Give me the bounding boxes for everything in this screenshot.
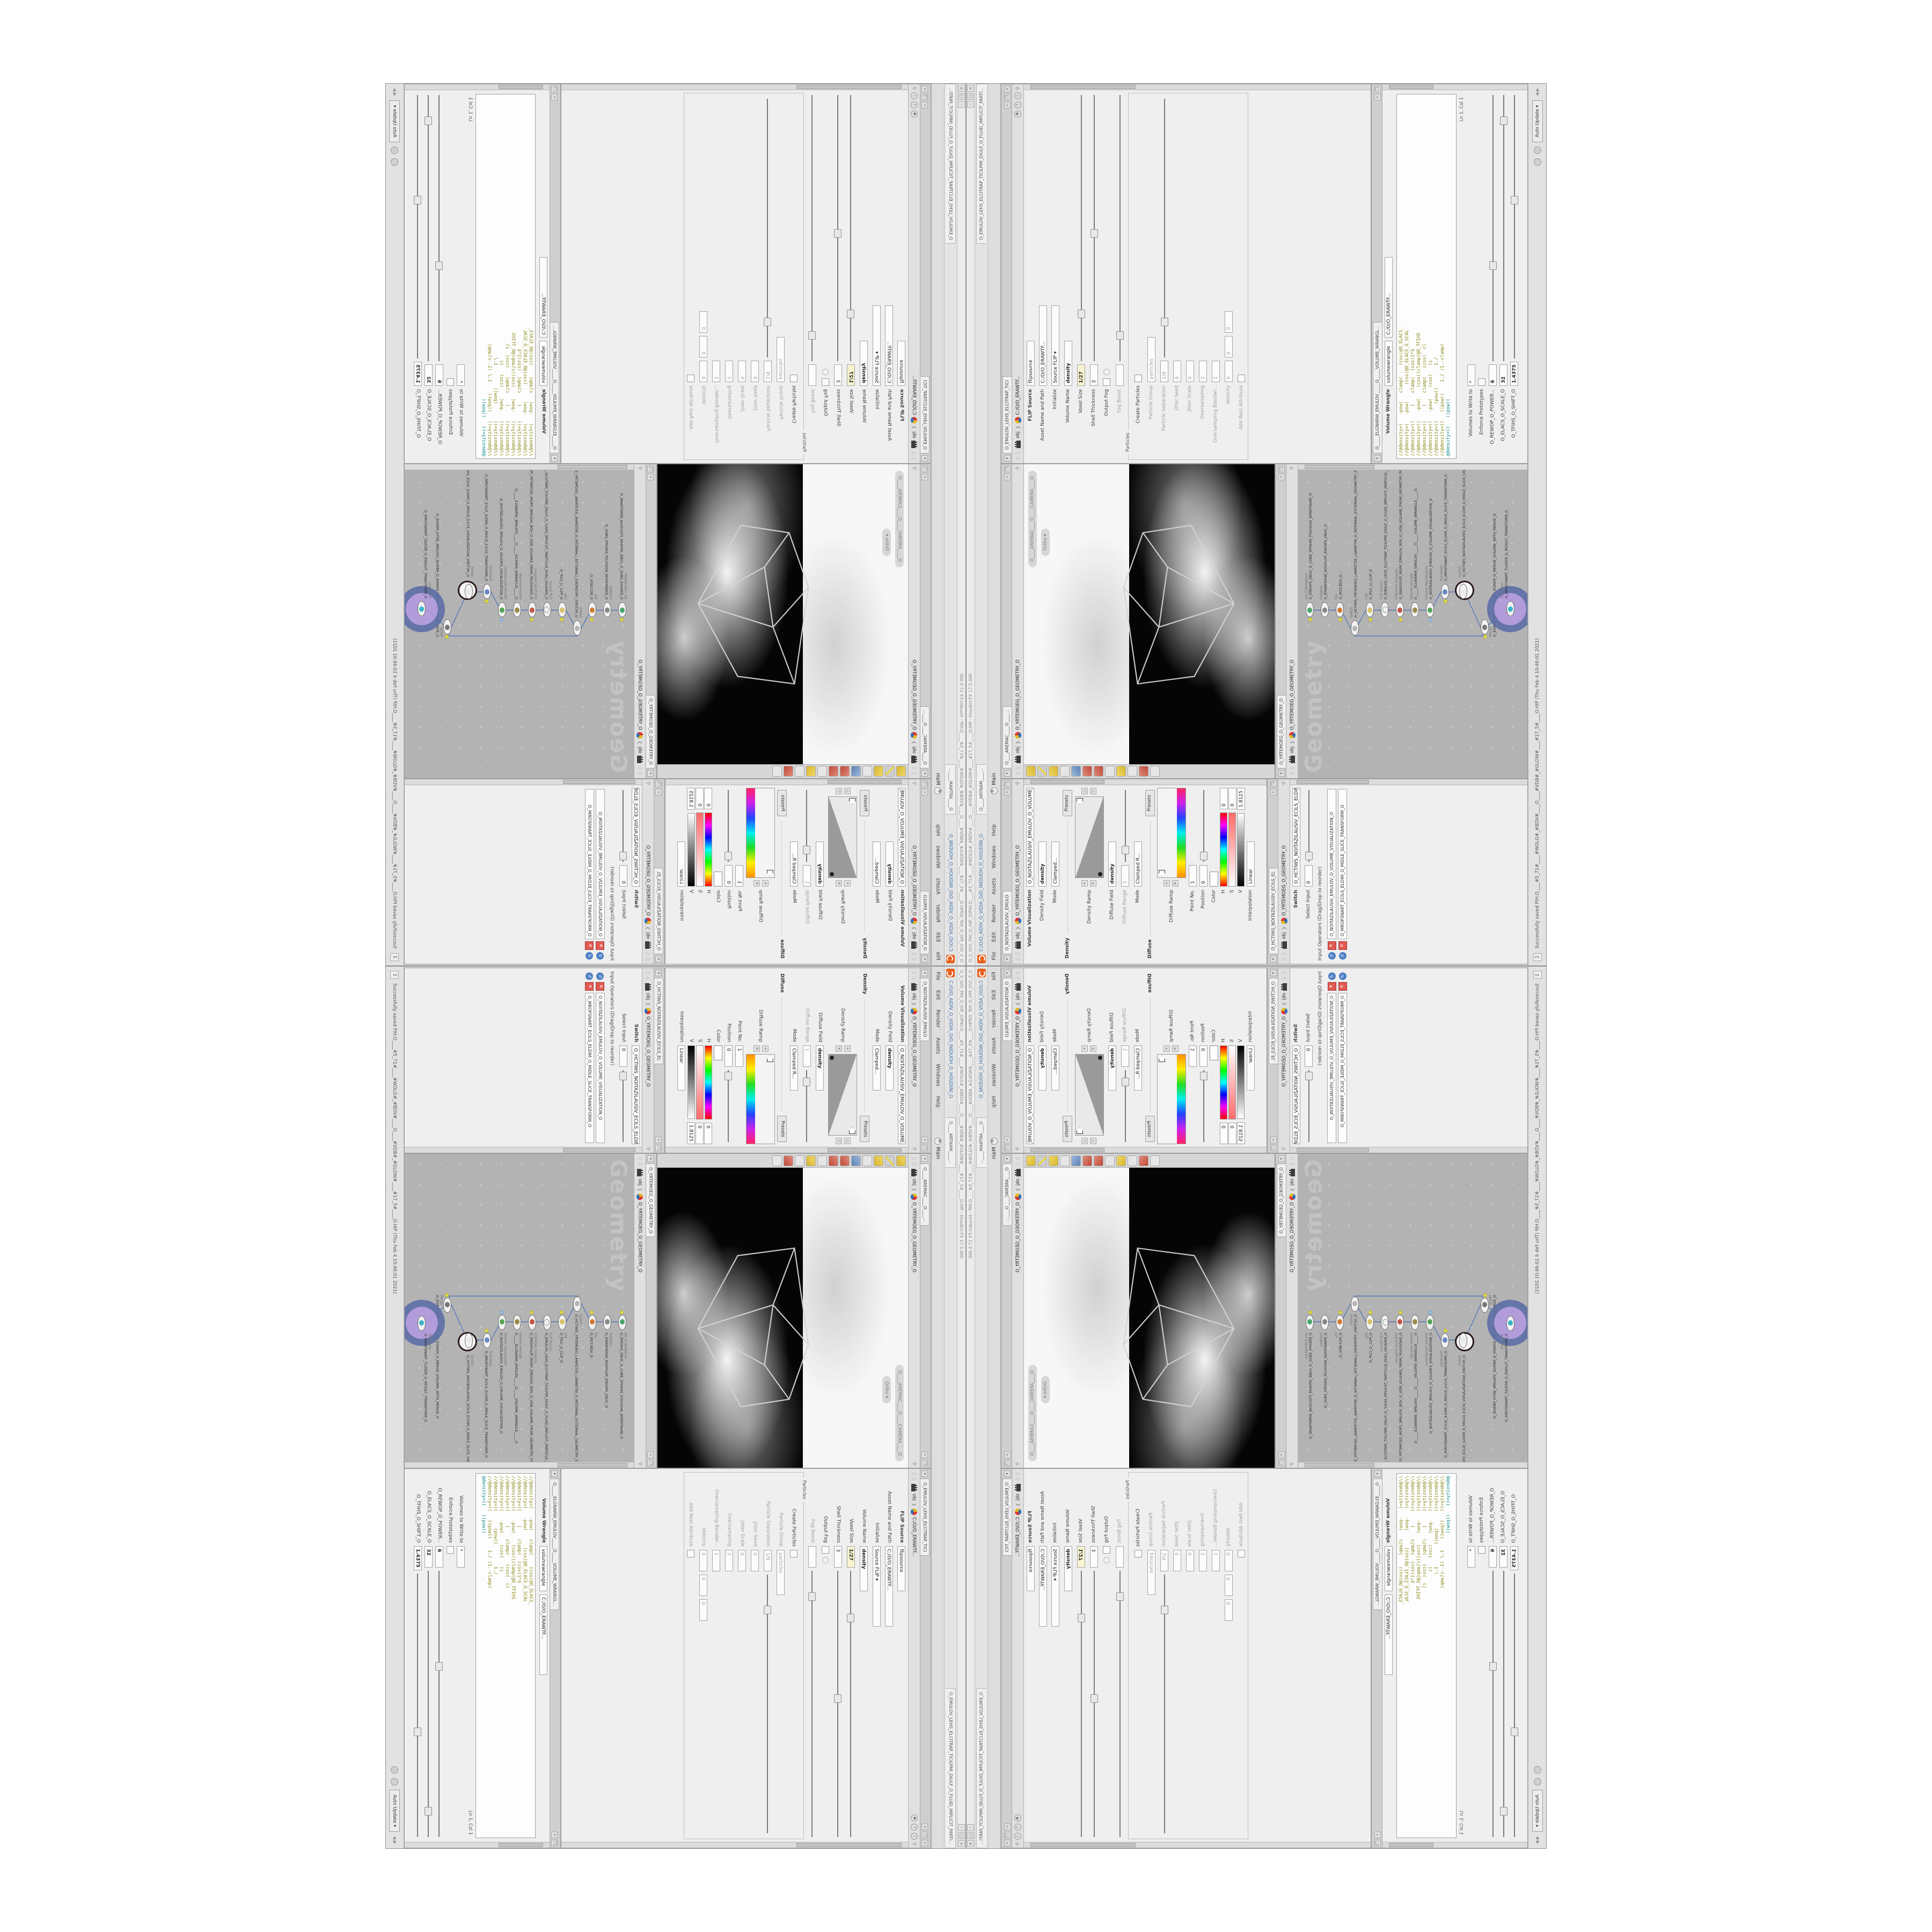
particle-group-input[interactable]: particles	[1147, 337, 1155, 382]
node[interactable]: Volume WrangleO_____ELGNARW_EMULOV_____O…	[1411, 602, 1419, 617]
diffuse-range-slider[interactable]	[1121, 788, 1129, 862]
pane-maximize-icon[interactable]: ❐	[921, 781, 928, 787]
select-input-slider[interactable]	[620, 788, 628, 862]
voxel-size-slider[interactable]	[1077, 1571, 1085, 1839]
remove-input-icon[interactable]: ✕	[1338, 982, 1347, 991]
select-tool-icon[interactable]	[1037, 1155, 1047, 1166]
volumes-input[interactable]: *	[1467, 1546, 1475, 1568]
pane-split-icon[interactable]: +	[921, 1137, 928, 1143]
volume-name-input[interactable]: density	[860, 1546, 868, 1591]
snap-grid-icon[interactable]	[1094, 1155, 1103, 1166]
diffuse-range-input[interactable]: 1	[803, 865, 811, 887]
jitter-scale-input[interactable]: 0	[1186, 1550, 1194, 1571]
shift-input[interactable]: 1.4375	[1510, 1546, 1518, 1570]
val-strip[interactable]	[1237, 1045, 1245, 1119]
view-tool-icon[interactable]	[896, 766, 906, 777]
density-field-input[interactable]: density	[886, 1045, 894, 1091]
maximize-icon[interactable]: □	[958, 1832, 965, 1839]
snap-grid-icon[interactable]	[829, 766, 838, 777]
pane-menu-icon[interactable]: ▾	[921, 1155, 928, 1162]
position-input[interactable]: 0	[725, 1045, 733, 1067]
asset-path-field[interactable]: C:/O/O_ERAWTF...	[540, 1594, 548, 1675]
help-icon[interactable]: ?	[1014, 1824, 1021, 1831]
node[interactable]: TransformO_MROFSNART_ECILS_ELDIM_O_MIDLE…	[483, 584, 491, 599]
ramp-flag-handle[interactable]	[767, 1056, 773, 1062]
shift-input[interactable]: 1.4375	[414, 362, 422, 386]
ortho-pill[interactable]: Ortho ▾	[1041, 529, 1050, 556]
tab-volume-visualization[interactable]: O_NOITAZILAUSIV_EMULO	[1002, 978, 1012, 1041]
pane-maximize-icon[interactable]: ❐	[1004, 1145, 1011, 1151]
diffuse-range-slider[interactable]	[803, 1070, 811, 1144]
node[interactable]: VDB from PolygonsO_SNOGYLOP_MORF_EMULOV_…	[528, 602, 536, 617]
pin-icon[interactable]: ⚲	[1015, 781, 1021, 785]
oversampling-bw-input[interactable]: 1	[713, 1550, 721, 1571]
node[interactable]: SwitchO_HCTIWS_YRTEMOEG_LANRETXE_LANRETN…	[573, 1297, 581, 1312]
volumes-input[interactable]: *	[457, 364, 465, 386]
pane-maximize-icon[interactable]: ❐	[921, 1832, 928, 1838]
reorder-icon[interactable]: ↺	[1328, 972, 1336, 980]
output-fog-checkbox[interactable]	[1103, 378, 1110, 386]
velocity-x-input[interactable]: 0	[700, 1550, 708, 1571]
stow-arrows-icon[interactable]: ⇧⇩	[1282, 970, 1287, 981]
input-operator-row[interactable]: ↺ ✕ O_NOITAZILAUSIV_EMULOV_O_VOLUME_VISU…	[596, 972, 605, 1143]
diffuse-mode-select[interactable]: Clamped R...	[791, 1045, 799, 1091]
shift-slider[interactable]	[414, 93, 422, 358]
select-input-slider[interactable]	[1305, 1070, 1313, 1144]
hue-input[interactable]: 0	[705, 1123, 713, 1144]
pane-menu-icon[interactable]: ▾	[1004, 1470, 1011, 1477]
node[interactable]: SwitchO_HCTIWS_YRTEMOEG_LANRETXE_LANRETN…	[1351, 1297, 1359, 1312]
reorder-icon[interactable]: ↺	[586, 972, 594, 980]
ramp-down-icon[interactable]: ▽	[836, 788, 842, 794]
density-ramp-widget[interactable]	[1075, 1054, 1104, 1136]
tab-network[interactable]: O_YRTEMOEG_O_GEOMETRY_O	[646, 1163, 655, 1237]
volumes-input[interactable]: *	[457, 1546, 465, 1568]
ramp-add-point-icon[interactable]: +	[844, 880, 851, 887]
shift-slider[interactable]	[1510, 93, 1518, 358]
pane-split-icon[interactable]: +	[1278, 474, 1285, 480]
stow-arrows-icon[interactable]: ⇧⇩	[1015, 1156, 1021, 1167]
stow-arrows-icon[interactable]: ⇧⇩	[912, 1471, 917, 1482]
pane-split-icon[interactable]: +	[1004, 1452, 1011, 1458]
voxel-size-input[interactable]: 1/27	[847, 364, 855, 386]
light-tool-icon[interactable]	[772, 766, 782, 777]
menu-help[interactable]: Help	[934, 1095, 942, 1109]
pane-maximize-icon[interactable]: ❐	[655, 1145, 662, 1151]
stow-arrows-icon[interactable]: ⇧⇩	[638, 765, 643, 776]
density-field-input[interactable]: density	[1038, 841, 1046, 887]
gear-icon[interactable]: ✱	[911, 1814, 918, 1821]
scrollbar[interactable]	[405, 84, 550, 90]
pane-menu-icon[interactable]: ▾	[1004, 1155, 1011, 1162]
diffuse-field-input[interactable]: density	[1108, 1045, 1116, 1091]
tab-volume-wrangle[interactable]: O_____ELGNARW_EMULOV_____O_____VOLUME_WR…	[550, 322, 559, 453]
menu-help[interactable]: Help	[990, 1095, 998, 1109]
snap-magnet-icon[interactable]	[1082, 766, 1092, 777]
path-text[interactable]: O_YRTEMOEG_O_GEOMETRY_O	[638, 1202, 643, 1272]
move-tool-icon[interactable]	[874, 766, 883, 777]
particle-separation-slider[interactable]	[764, 97, 772, 357]
info-tool-icon[interactable]	[795, 766, 804, 777]
tab-flip-window[interactable]: O_EMULOV_LEHS_ELCITRAP_TICILPMI_DIULF_O_…	[946, 1688, 956, 1848]
lasso-select-icon[interactable]	[1105, 766, 1115, 777]
fog-boost-input[interactable]	[809, 1546, 817, 1568]
desktop-selector[interactable]: Main	[934, 1138, 941, 1159]
maximize-icon[interactable]: □	[967, 93, 974, 100]
particle-group-input[interactable]: particles	[777, 337, 785, 382]
shell-thickness-input[interactable]: 3	[1090, 1546, 1098, 1568]
ramp-point-handle[interactable]	[1098, 872, 1102, 876]
pane-maximize-icon[interactable]: ❐	[1270, 1145, 1277, 1151]
brush-tool-icon[interactable]	[806, 1155, 816, 1166]
snap-grid-icon[interactable]	[1094, 766, 1103, 777]
menu-windows[interactable]: Windows	[934, 1063, 942, 1087]
close-icon[interactable]: ×	[967, 85, 974, 92]
val-strip[interactable]	[1237, 814, 1245, 887]
path-crumb[interactable]: obj	[912, 1179, 917, 1185]
scrollbar[interactable]	[405, 1462, 634, 1468]
node-name-field[interactable]: flipsource	[898, 341, 906, 386]
create-particles-checkbox[interactable]	[790, 1550, 797, 1557]
pane-close-icon[interactable]: ×	[921, 1840, 928, 1846]
vex-code-editor[interactable]: //@density=( -pow( clamp( (cos(@O_ELACS_…	[1396, 94, 1457, 459]
pane-maximize-icon[interactable]: ❐	[921, 94, 928, 100]
ramp-point-handle[interactable]	[830, 1056, 834, 1060]
pin-icon[interactable]: ⚲	[1015, 466, 1021, 470]
node[interactable]: PolyWireO_EMARFERIW_NOGYLOP_EREHPS_EBUC_…	[603, 602, 611, 617]
pin-icon[interactable]: ⚲	[912, 1147, 917, 1151]
enforce-checkbox[interactable]	[447, 1546, 454, 1554]
scrollbar[interactable]	[1290, 779, 1527, 785]
shell-thickness-slider[interactable]	[1090, 93, 1098, 361]
path-text[interactable]: O_YRTEMOEG_O_GEOMETRY_O	[1015, 1016, 1021, 1087]
oversampling-bw-input[interactable]: 1	[1212, 1550, 1220, 1571]
hue-input[interactable]: 0	[1220, 1123, 1228, 1144]
output-fog-checkbox[interactable]	[822, 378, 829, 386]
window-titlebar[interactable]: O_5_O/O_PIH_O_HIP_O/PIH.O____#5_71#____#…	[967, 84, 975, 965]
stow-arrows-icon[interactable]: ⇧⇩	[1290, 765, 1295, 776]
pin-icon[interactable]: ⚲	[1015, 1842, 1021, 1846]
scroll-arrows-icon[interactable]: ◀ ▶	[392, 1836, 397, 1844]
stow-arrows-icon[interactable]: ⇧⇩	[1015, 951, 1021, 962]
ramp-add-point-icon[interactable]: +	[844, 1045, 851, 1052]
oversampling-input[interactable]: 2	[726, 361, 734, 382]
pose-tool-icon[interactable]	[851, 766, 861, 777]
path-text[interactable]: O_YRTEMOEG_O_GEOMETRY_O	[1015, 660, 1021, 730]
point-no-input[interactable]: 1	[736, 865, 744, 887]
menu-windows[interactable]: Windows	[990, 845, 998, 869]
brush-tool-icon[interactable]	[1116, 1155, 1126, 1166]
input-operator-1[interactable]: O_MROFSNART_ECILS_ELDIM_O_MIDLE_SLICE_TR…	[1338, 993, 1347, 1143]
sat-input[interactable]: 0	[1228, 788, 1236, 809]
ramp-down-icon[interactable]: ▽	[836, 1138, 842, 1144]
output-fog-checkbox[interactable]	[1103, 1546, 1110, 1554]
oversampling-input[interactable]: 2	[1199, 361, 1207, 382]
asset-path[interactable]: C:/O/O_ERAWTF...	[1015, 376, 1021, 415]
node-name-field[interactable]: volumewrangle	[540, 1546, 548, 1591]
create-particles-checkbox[interactable]	[1135, 1550, 1142, 1557]
desktop-selector[interactable]: Main	[934, 773, 941, 794]
network-canvas[interactable]: Geometry am_CubeSphereO_EREHPS_EBUC_O_CU…	[1298, 470, 1527, 778]
desktop-selector[interactable]: Main	[991, 1138, 998, 1159]
pane-maximize-icon[interactable]: ❐	[1004, 94, 1011, 100]
position-input[interactable]: 0	[725, 865, 733, 887]
camera-pill[interactable]: O____AREMAC____O____CAMERA____O	[1028, 471, 1037, 567]
snap-magnet-icon[interactable]	[1082, 1155, 1092, 1166]
snap-grid-icon[interactable]	[829, 1155, 838, 1166]
sat-strip[interactable]	[696, 1045, 704, 1119]
ramp-add-point-icon[interactable]: +	[1163, 880, 1170, 887]
asset-path-field[interactable]: C:/O/O_ERAWTF...	[885, 305, 894, 386]
ramp-add-point-icon[interactable]: +	[1163, 1045, 1170, 1052]
path-crumb[interactable]: obj	[912, 1494, 917, 1501]
vex-code-editor[interactable]: //@density=( -pow( clamp( (cos(@O_ELACS_…	[475, 94, 536, 459]
val-strip[interactable]	[687, 814, 695, 887]
node[interactable]: Volume VisualizationO_NOITAZILAUSIV_EMUL…	[1426, 602, 1434, 617]
camera-pill[interactable]: O____AREMAC____O____CAMERA____O	[895, 1365, 904, 1461]
tab-switch[interactable]: O_HCTIWS_NOITAZILAUSIV_ECILS_EL	[1269, 978, 1278, 1064]
update-mode-select[interactable]: Auto Update ▾	[390, 1790, 400, 1832]
camera-pill[interactable]: O____AREMAC____O____CAMERA____O	[1028, 1365, 1037, 1461]
ramp-up-icon[interactable]: △	[1081, 1138, 1088, 1144]
initialize-select[interactable]: Source FLIP ▾	[873, 1546, 881, 1627]
window-titlebar[interactable]: O_5_O/O_PIH_O_HIP_O/PIH.O____#5_71#____#…	[967, 967, 975, 1848]
oversampling-bw-input[interactable]: 1	[713, 361, 721, 382]
input-operator-row[interactable]: ↺ ✕ O_NOITAZILAUSIV_EMULOV_O_VOLUME_VISU…	[596, 789, 605, 960]
scrollbar[interactable]	[1024, 1842, 1371, 1848]
path-crumb[interactable]: obj	[1015, 431, 1021, 438]
pane-split-icon[interactable]: +	[921, 1824, 928, 1830]
info-icon[interactable]: i	[911, 92, 918, 99]
input-operator-row[interactable]: ↺ ✕ O_MROFSNART_ECILS_ELDIM_O_MIDLE_SLIC…	[1338, 972, 1347, 1143]
scrollbar[interactable]	[665, 1147, 908, 1153]
stow-arrows-icon[interactable]: ⇧⇩	[912, 951, 917, 962]
reorder-icon[interactable]: ↺	[597, 972, 604, 980]
tab-network[interactable]: O_YRTEMOEG_O_GEOMETRY_O	[1277, 695, 1286, 769]
pose-tool-icon[interactable]	[851, 1155, 861, 1166]
node[interactable]: Volume VisualizationO_NOITAZILAUSIV_EMUL…	[498, 602, 506, 617]
ramp-down-icon[interactable]: ▽	[1090, 788, 1096, 794]
diffuse-field-input[interactable]: density	[816, 841, 824, 887]
node[interactable]: am_CubeSphereO_EREHPS_EBUC_O_CUBE_SPHERE…	[618, 602, 626, 617]
gear-icon[interactable]: ✱	[1014, 111, 1021, 118]
output-fog-radio[interactable]	[1103, 369, 1110, 375]
pin-icon[interactable]: ⚲	[912, 1842, 917, 1846]
scrollbar[interactable]	[1298, 1462, 1527, 1468]
tab-switch[interactable]: O_HCTIWS_NOITAZILAUSIV_ECILS_EL	[1269, 868, 1278, 954]
camera-pill[interactable]: O____AREMAC____O____CAMERA____O	[895, 471, 904, 567]
scrollbar[interactable]	[1382, 1842, 1527, 1848]
val-input[interactable]: 1.8125	[1237, 1122, 1245, 1145]
menu-render[interactable]: Render	[990, 1008, 998, 1029]
asset-path-field[interactable]: C:/O/O_ERAWTF...	[1039, 305, 1047, 386]
pin-icon[interactable]: ⚲	[646, 1147, 651, 1151]
ramp-delete-point-icon[interactable]: ✕	[1172, 880, 1179, 887]
ramp-delete-point-icon[interactable]: ✕	[836, 880, 842, 887]
pane-maximize-icon[interactable]: ❐	[1278, 1460, 1285, 1466]
pane-maximize-icon[interactable]: ❐	[1374, 1840, 1381, 1846]
pane-close-icon[interactable]: ×	[921, 86, 928, 92]
shell-thickness-slider[interactable]	[835, 93, 843, 361]
gear-icon[interactable]: ✱	[1014, 1814, 1021, 1821]
pin-icon[interactable]: ⚲	[1282, 781, 1287, 785]
menu-help[interactable]: Help	[934, 823, 942, 837]
density-presets-button[interactable]: Presets	[1063, 1116, 1072, 1142]
select-input-field[interactable]: 0	[1305, 1045, 1313, 1067]
diffuse-presets-button[interactable]: Presets	[777, 790, 787, 816]
select-tool-icon[interactable]	[885, 1155, 895, 1166]
fog-boost-slider[interactable]	[809, 1571, 817, 1839]
ramp-delete-point-icon[interactable]: ✕	[1090, 880, 1096, 887]
menu-edit[interactable]: Edit	[990, 989, 998, 1001]
stow-arrows-icon[interactable]: ⇧⇩	[912, 450, 917, 461]
asset-path[interactable]: C:/O/O_ERAWTF...	[912, 1517, 917, 1557]
ramp-delete-point-icon[interactable]: ✕	[753, 880, 760, 887]
node-name-field[interactable]: O_NOITAZILAUSIV_EMULOV_O_VOLUME_VISUALIZ…	[1026, 1045, 1034, 1144]
stow-arrows-icon[interactable]: ⇧⇩	[1282, 951, 1287, 962]
node[interactable]: Volume WrangleO_____ELGNARW_EMULOV_____O…	[1411, 1315, 1419, 1330]
scroll-arrows-icon[interactable]: ◀ ▶	[392, 88, 397, 96]
snap-magnet-icon[interactable]	[840, 766, 850, 777]
remove-input-icon[interactable]: ✕	[586, 982, 594, 991]
power-input[interactable]: 6	[436, 364, 444, 386]
input-operator-0[interactable]: O_NOITAZILAUSIV_EMULOV_O_VOLUME_VISUALIZ…	[1327, 993, 1336, 1143]
vex-code-editor[interactable]: //@density=( -pow( clamp( (cos(@O_ELACS_…	[1396, 1473, 1457, 1838]
path-crumb[interactable]: obj	[646, 993, 651, 1000]
menu-render[interactable]: Render	[934, 903, 942, 924]
tab-mantra[interactable]: O____ARTNAM____...	[976, 1117, 986, 1168]
tab-switch[interactable]: O_HCTIWS_NOITAZILAUSIV_ECILS_EL	[654, 868, 663, 954]
position-input[interactable]: 0	[1199, 1045, 1207, 1067]
select-input-field[interactable]: 0	[620, 865, 628, 887]
path-text[interactable]: O_YRTEMOEG_O_GEOMETRY_O	[638, 660, 643, 730]
path-crumb[interactable]: obj	[1290, 747, 1295, 753]
minimize-icon[interactable]: –	[967, 1824, 974, 1831]
fog-boost-slider[interactable]	[809, 93, 817, 361]
pane-split-icon[interactable]: +	[1270, 1137, 1277, 1143]
sat-strip[interactable]	[1228, 813, 1236, 887]
path-crumb[interactable]: obj	[1282, 932, 1287, 939]
input-operator-row[interactable]: ↺ ✕ O_MROFSNART_ECILS_ELDIM_O_MIDLE_SLIC…	[1338, 789, 1347, 960]
scrollbar[interactable]	[1024, 779, 1267, 785]
oversampling-input[interactable]: 2	[1199, 1550, 1207, 1571]
input-operator-0[interactable]: O_NOITAZILAUSIV_EMULOV_O_VOLUME_VISUALIZ…	[1327, 789, 1336, 939]
handles-tool-icon[interactable]	[1060, 766, 1070, 777]
tab-volume-wrangle[interactable]: O_____ELGNARW_EMULOV_____O_____VOLUME_WR…	[1373, 1479, 1382, 1610]
val-input[interactable]: 1.8125	[1237, 788, 1245, 810]
stow-arrows-icon[interactable]: ⇧⇩	[912, 970, 917, 981]
path-crumb[interactable]: obj	[646, 932, 651, 939]
pane-maximize-icon[interactable]: ❐	[647, 466, 654, 472]
menu-edit[interactable]: Edit	[934, 989, 942, 1001]
menu-assets[interactable]: Assets	[934, 1036, 942, 1055]
path-crumb[interactable]: obj	[1015, 1179, 1021, 1185]
pane-maximize-icon[interactable]: ❐	[921, 466, 928, 472]
pane-menu-icon[interactable]: ▾	[1374, 455, 1381, 462]
scroll-arrows-icon[interactable]: ◀ ▶	[1535, 1836, 1540, 1844]
pane-split-icon[interactable]: +	[1004, 474, 1011, 480]
lasso-select-icon[interactable]	[817, 766, 827, 777]
node[interactable]: SwitchO_HCTIWS_NOITAZILAUSIV_ECILS_ELDIM…	[465, 1333, 473, 1348]
shell-thickness-slider[interactable]	[1090, 1571, 1098, 1839]
diffuse-presets-button[interactable]: Presets	[1145, 1116, 1155, 1142]
viewport-canvas[interactable]: O____AREMAC____O____CAMERA____O Ortho ▾	[1024, 464, 1275, 764]
power-slider[interactable]	[1489, 1571, 1497, 1839]
shell-thickness-input[interactable]: 3	[835, 364, 843, 386]
asset-path-field[interactable]: C:/O/O_ERAWTF...	[1385, 257, 1393, 338]
brush-tool-icon[interactable]	[1116, 766, 1126, 777]
scrollbar[interactable]	[1024, 84, 1371, 90]
scale-slider[interactable]	[425, 1571, 433, 1839]
remove-input-icon[interactable]: ✕	[596, 941, 605, 950]
scale-slider[interactable]	[1499, 93, 1507, 361]
remove-input-icon[interactable]: ✕	[596, 982, 605, 991]
particle-separation-input[interactable]: 1/9	[1160, 361, 1168, 382]
density-presets-button[interactable]: Presets	[860, 790, 869, 816]
diffuse-presets-button[interactable]: Presets	[777, 1116, 787, 1142]
node[interactable]: ClipO_PILC_O_CLIP_O	[1366, 1315, 1374, 1330]
velocity-z-input[interactable]: 0	[700, 1599, 708, 1621]
diffuse-range-input[interactable]: 1	[1121, 1045, 1129, 1067]
node[interactable]: am_CubeSphereO_EREHPS_EBUC_O_CUBE_SPHERE…	[1306, 1315, 1314, 1330]
density-presets-button[interactable]: Presets	[860, 1116, 869, 1142]
node-name-field[interactable]: volumewrangle	[1385, 1546, 1393, 1591]
minimize-icon[interactable]: –	[958, 1824, 965, 1831]
node-name-field[interactable]: volumewrangle	[1385, 341, 1393, 386]
handles-tool-icon[interactable]	[1060, 1155, 1070, 1166]
pane-menu-icon[interactable]: ▾	[551, 1470, 558, 1477]
light-tool-icon[interactable]	[1150, 766, 1160, 777]
hue-input[interactable]: 0	[1220, 788, 1228, 809]
pane-maximize-icon[interactable]: ❐	[647, 1460, 654, 1466]
scrollbar[interactable]	[1382, 84, 1527, 90]
ramp-delete-point-icon[interactable]: ✕	[1090, 1045, 1096, 1052]
input-operator-0[interactable]: O_NOITAZILAUSIV_EMULOV_O_VOLUME_VISUALIZ…	[596, 789, 605, 939]
pane-menu-icon[interactable]: ▾	[1004, 770, 1011, 777]
pane-split-icon[interactable]: +	[921, 102, 928, 108]
scale-input[interactable]: 32	[1499, 1546, 1507, 1568]
oversampling-input[interactable]: 2	[726, 1550, 734, 1571]
tab-volume-visualization[interactable]: O_NOITAZILAUSIV_EMULO	[1002, 891, 1012, 954]
node[interactable]: MergeO_EGREM_HTIW_EMULOV_EGREM_O_MERGE_V…	[1481, 619, 1489, 634]
voxel-size-input[interactable]: 1/27	[1077, 364, 1085, 386]
pin-icon[interactable]: ⚲	[912, 781, 917, 785]
input-operator-1[interactable]: O_MROFSNART_ECILS_ELDIM_O_MIDLE_SLICE_TR…	[1338, 789, 1347, 939]
node-name-field[interactable]: O_HCTIWS_NOITAZILAUSIV_ECILS_ELDIM_O_MID…	[632, 788, 640, 887]
pane-menu-icon[interactable]: ▾	[921, 770, 928, 777]
handles-tool-icon[interactable]	[862, 766, 872, 777]
pane-menu-icon[interactable]: ▾	[921, 455, 928, 462]
node-name-field[interactable]: flipsource	[898, 1546, 906, 1591]
fog-boost-slider[interactable]	[1116, 1571, 1124, 1839]
pin-icon[interactable]: ⚲	[638, 466, 643, 470]
interpolation-select[interactable]: Linear	[1247, 841, 1255, 887]
menu-file[interactable]: File	[990, 971, 998, 982]
pane-maximize-icon[interactable]: ❐	[921, 1145, 928, 1151]
position-slider[interactable]	[1199, 788, 1207, 862]
tab-scene-view[interactable]: O____AREMAC____O____...	[920, 706, 930, 769]
node[interactable]: Volume WrangleO_____ELGNARW_EMULOV_____O…	[513, 1315, 521, 1330]
node[interactable]: PolyWireO_EMARFERIW_NOGYLOP_EREHPS_EBUC_…	[603, 1315, 611, 1330]
asset-path[interactable]: C:/O/O_ERAWTF...	[912, 376, 917, 415]
pane-menu-icon[interactable]: ▾	[1278, 770, 1285, 777]
move-tool-icon[interactable]	[1049, 1155, 1058, 1166]
pane-maximize-icon[interactable]: ❐	[655, 781, 662, 787]
node[interactable]: VDB from PolygonsO_SNOGYLOP_MORF_EMULOV_…	[1396, 602, 1404, 617]
ramp-delete-point-icon[interactable]: ✕	[753, 1045, 760, 1052]
select-tool-icon[interactable]	[1037, 766, 1047, 777]
node-selected[interactable]: TransformO_MROFSNART_TLUSER_O_RESULT_TRA…	[1506, 1316, 1514, 1331]
